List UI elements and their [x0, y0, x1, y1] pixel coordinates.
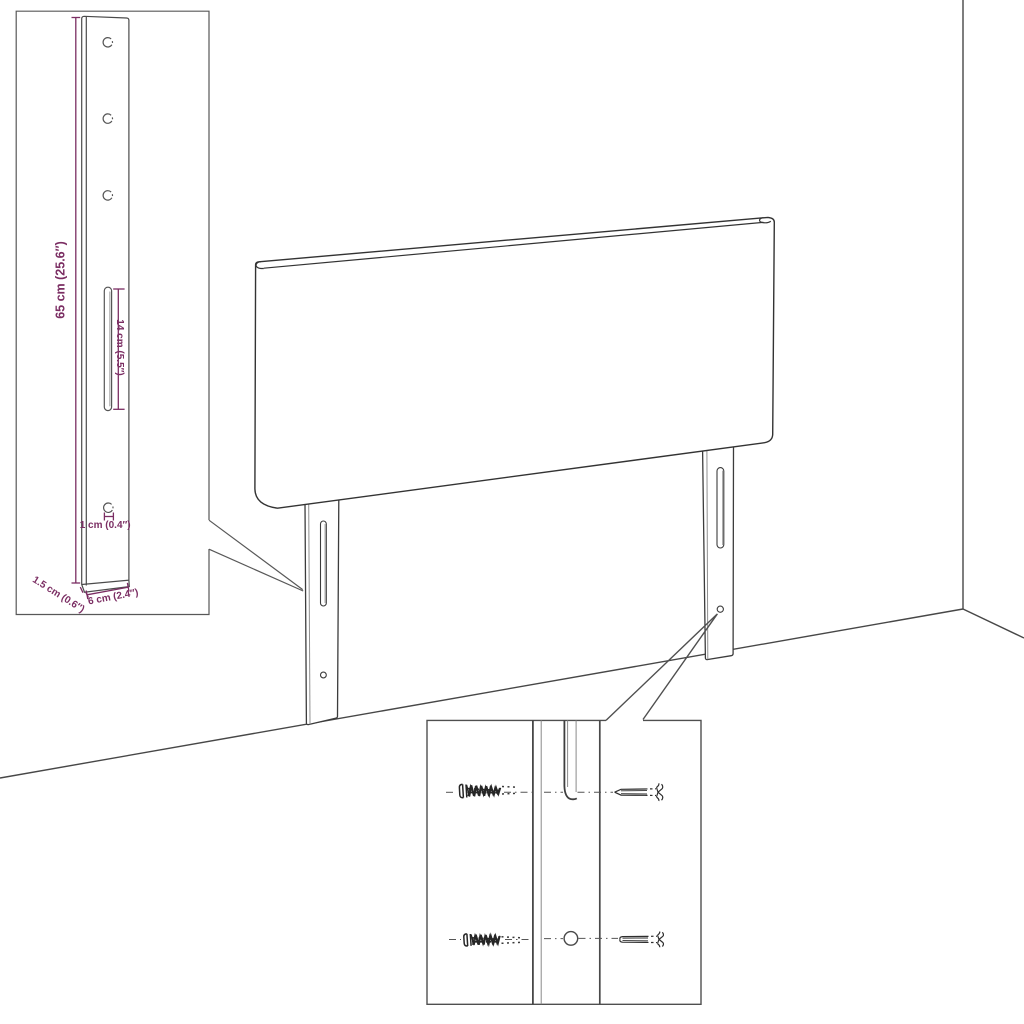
svg-text:1 cm (0.4″): 1 cm (0.4″) — [80, 520, 131, 531]
svg-text:14 cm (5.5″): 14 cm (5.5″) — [114, 319, 125, 375]
svg-text:65 cm (25.6″): 65 cm (25.6″) — [53, 241, 67, 319]
